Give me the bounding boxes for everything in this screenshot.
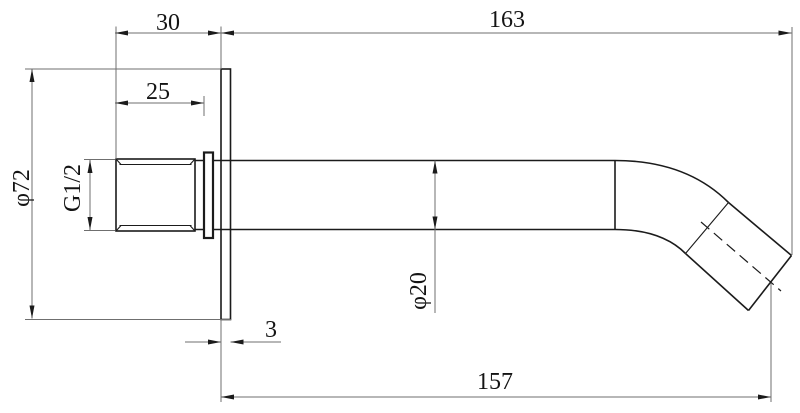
arrowhead bbox=[88, 217, 93, 230]
arrowhead bbox=[208, 31, 221, 36]
dim-30: 30 bbox=[115, 10, 221, 36]
wall-plate bbox=[221, 69, 231, 320]
arrowhead bbox=[779, 31, 792, 36]
dim-phi72: φ72 bbox=[9, 69, 231, 320]
tip-joint-line bbox=[686, 203, 729, 254]
arrowhead bbox=[221, 395, 234, 400]
thread-outline bbox=[116, 159, 195, 231]
tip-inner-edge bbox=[686, 254, 749, 311]
arrowhead bbox=[208, 340, 221, 345]
dim-label-30: 30 bbox=[156, 10, 180, 36]
drawing-canvas: 30 163 25 φ72 bbox=[0, 0, 800, 413]
dim-label-phi20: φ20 bbox=[406, 272, 432, 310]
arrowhead bbox=[433, 217, 438, 230]
bend-outer-curve bbox=[615, 161, 729, 203]
tip-centerline bbox=[701, 222, 781, 291]
arrowhead bbox=[758, 395, 771, 400]
dim-25: 25 bbox=[115, 79, 204, 116]
threaded-inlet bbox=[116, 159, 195, 231]
tip-end-face bbox=[749, 256, 792, 311]
dim-label-157: 157 bbox=[477, 369, 513, 395]
arrowhead bbox=[30, 306, 35, 319]
dim-label-g12: G1/2 bbox=[60, 164, 86, 212]
arrowhead bbox=[115, 101, 128, 106]
dim-163: 163 bbox=[221, 7, 792, 36]
dim-label-3: 3 bbox=[265, 317, 277, 343]
dim-3: 3 bbox=[185, 317, 281, 345]
arrowhead bbox=[191, 101, 204, 106]
dim-157: 157 bbox=[221, 283, 771, 402]
tip-outer-edge bbox=[729, 203, 792, 256]
arrowhead bbox=[433, 161, 438, 174]
bend-inner-curve bbox=[615, 230, 686, 254]
dim-label-phi72: φ72 bbox=[9, 169, 35, 207]
dim-label-25: 25 bbox=[146, 79, 170, 105]
dim-g12: G1/2 bbox=[60, 160, 115, 231]
flange-disc bbox=[204, 153, 213, 239]
dimensions: 30 163 25 φ72 bbox=[9, 7, 792, 402]
arrowhead bbox=[221, 31, 234, 36]
spout-body bbox=[116, 69, 792, 320]
arrowhead bbox=[231, 340, 244, 345]
arrowhead bbox=[30, 69, 35, 82]
arrowhead bbox=[115, 31, 128, 36]
spout-technical-drawing: 30 163 25 φ72 bbox=[0, 0, 800, 413]
dim-label-163: 163 bbox=[489, 7, 525, 33]
arrowhead bbox=[88, 160, 93, 173]
dim-phi20: φ20 bbox=[406, 161, 438, 314]
